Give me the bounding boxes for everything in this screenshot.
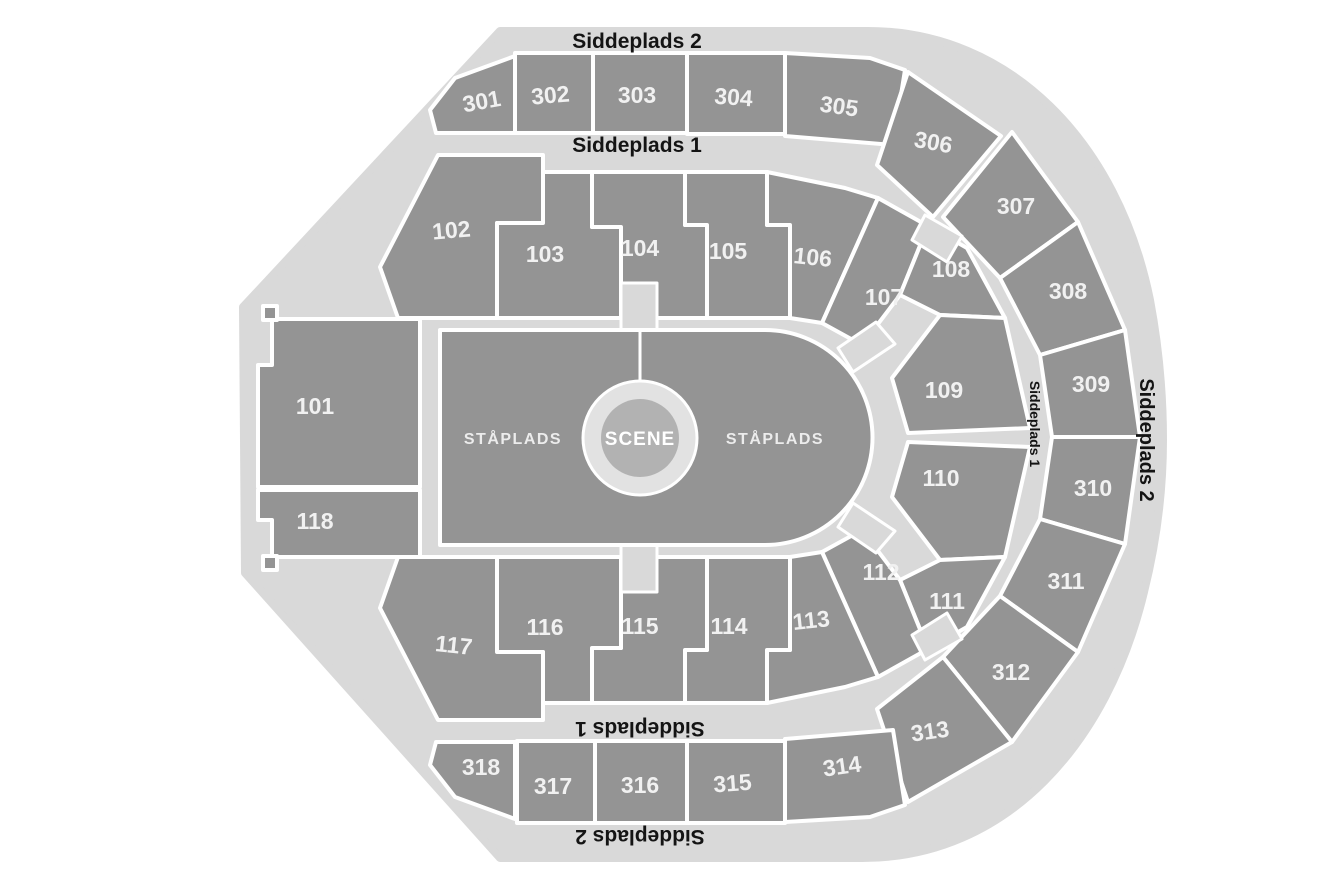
section-112-label: 112 [862,559,899,585]
seat-map-svg: STÅPLADS STÅPLADS SCENE Siddeplads 2 Sid… [0,0,1320,877]
section-115-label: 115 [621,613,658,639]
section-309-label: 309 [1072,371,1110,397]
section-117-label: 117 [434,630,474,660]
section-316-label: 316 [621,772,659,798]
section-101-label: 101 [296,393,335,419]
section-108-label: 108 [932,256,971,282]
section-101[interactable] [258,319,420,487]
heading-tier1-top: Siddeplads 1 [572,134,702,157]
heading-tier2-bottom: Siddeplads 2 [575,825,705,848]
section-105-label: 105 [709,238,748,264]
section-317-label: 317 [534,773,572,799]
section-102-label: 102 [431,215,471,244]
section-312-label: 312 [992,659,1030,685]
arena-seat-map: STÅPLADS STÅPLADS SCENE Siddeplads 2 Sid… [0,0,1320,877]
section-315-label: 315 [712,769,752,798]
section-318-label: 318 [462,754,501,780]
section-118[interactable] [258,490,420,557]
section-303-label: 303 [618,82,656,108]
floor-right-label: STÅPLADS [726,429,824,448]
section-310-label: 310 [1074,475,1112,501]
section-313-label: 313 [909,716,951,747]
section-304-label: 304 [714,83,754,112]
heading-tier2-top: Siddeplads 2 [572,30,702,53]
section-113-label: 113 [791,605,831,635]
floor-left-label: STÅPLADS [464,429,562,448]
section-118-label: 118 [296,508,333,534]
heading-tier2-right: Siddeplads 2 [1135,378,1157,501]
section-307-label: 307 [997,193,1035,219]
section-104-label: 104 [621,235,660,261]
section-305-label: 305 [818,91,860,122]
section-314-label: 314 [821,751,863,782]
section-118-tab [263,556,277,570]
vomitory-tab-bottom [621,543,657,592]
section-107-label: 107 [865,284,903,310]
section-103-label: 103 [526,241,564,267]
section-109-label: 109 [925,377,963,403]
heading-tier1-right: Siddeplads 1 [1027,381,1043,468]
section-114-label: 114 [710,613,747,639]
section-111-label: 111 [929,588,965,614]
heading-tier1-bottom: Siddeplads 1 [575,717,705,740]
section-116-label: 116 [526,614,563,640]
section-308-label: 308 [1049,278,1088,304]
vomitory-tab-top [621,283,657,332]
section-110-label: 110 [922,465,959,491]
section-106-label: 106 [792,242,833,272]
section-302-label: 302 [530,80,570,109]
section-311-label: 311 [1047,568,1084,594]
stage-label: SCENE [605,429,675,450]
section-101-tab [263,306,277,320]
